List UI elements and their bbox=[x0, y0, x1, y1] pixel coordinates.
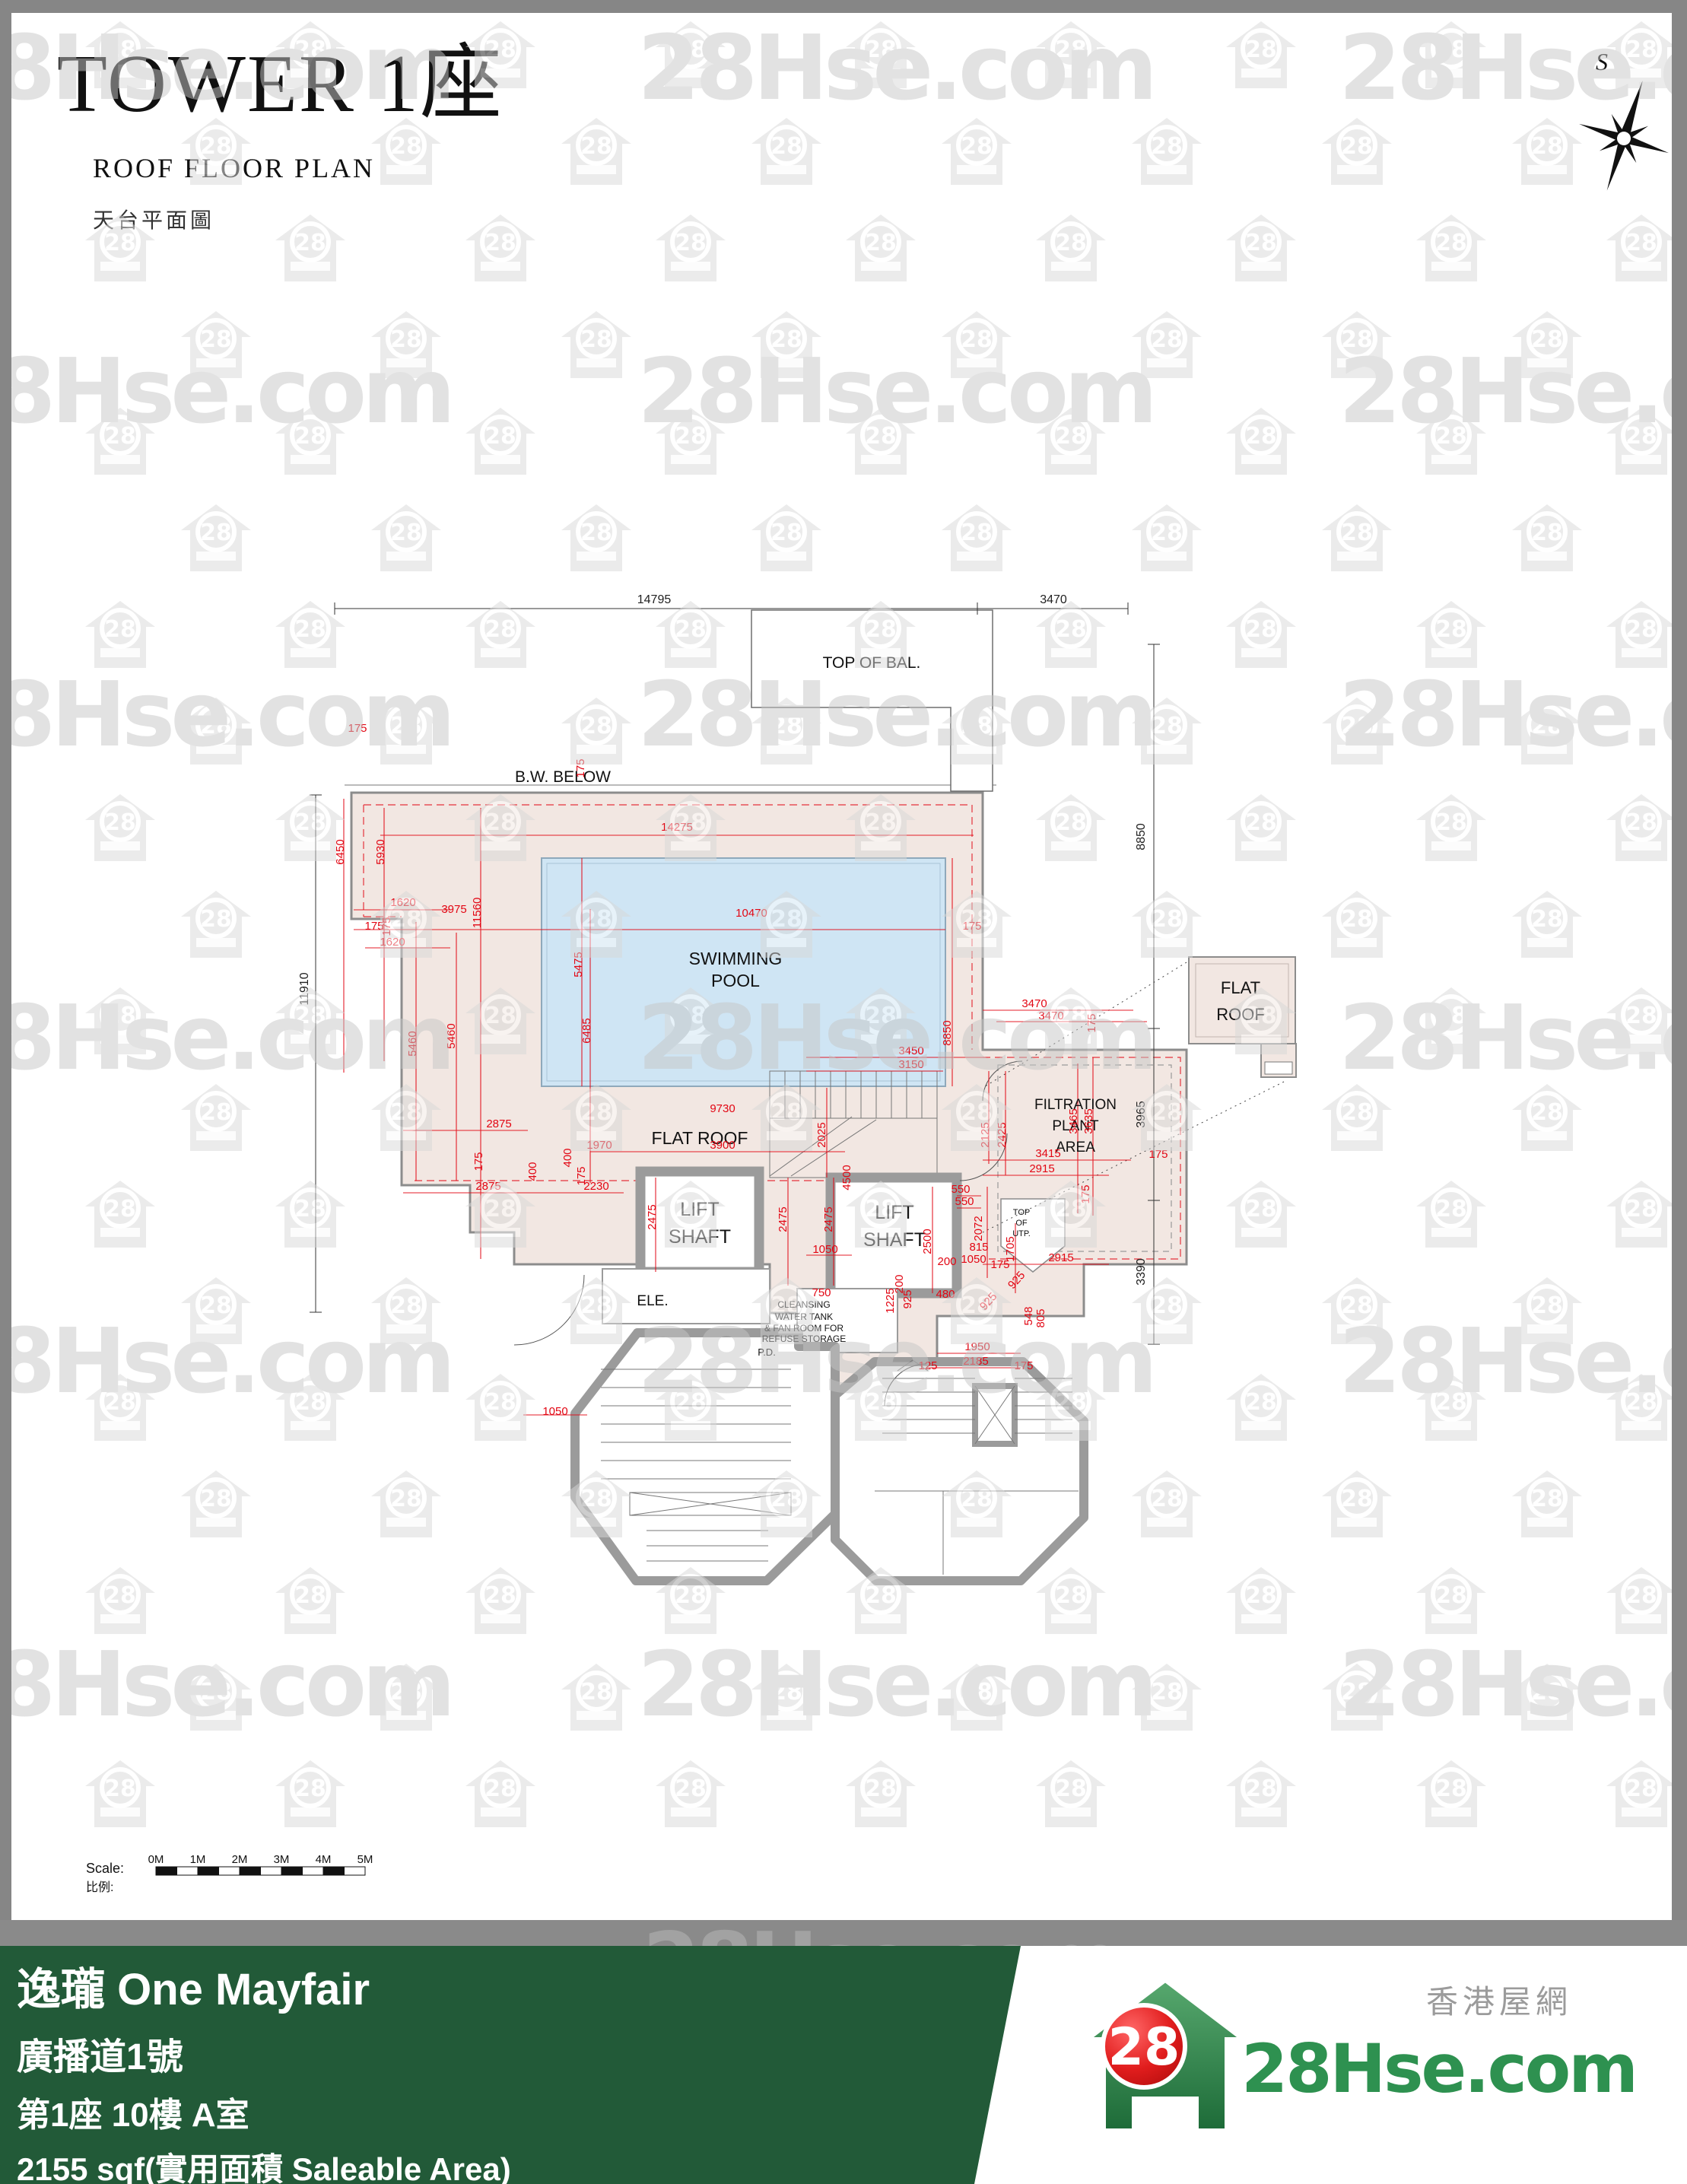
dimension-label: 11560 bbox=[471, 898, 484, 929]
dimension-label: 2072 bbox=[972, 1216, 985, 1241]
dimension-label: 14795 bbox=[637, 593, 672, 606]
dimension-label: 2230 bbox=[583, 1180, 608, 1193]
top-of-bal-box bbox=[751, 610, 993, 791]
room-label: AREA bbox=[1056, 1140, 1095, 1156]
dimension-label: 1620 bbox=[390, 896, 415, 909]
strip-watermark: 28Hse.com bbox=[643, 1920, 1118, 1946]
room-label: B.W. BELOW bbox=[515, 768, 611, 786]
dimension-label: 175 bbox=[1148, 1148, 1168, 1161]
dimension-label: 815 bbox=[969, 1241, 988, 1254]
dimension-label: 175 bbox=[380, 917, 393, 936]
room-label: LIFT bbox=[680, 1199, 719, 1220]
dimension-label: 2025 bbox=[815, 1122, 828, 1147]
dimension-label: 3390 bbox=[1135, 1258, 1148, 1286]
dimension-label: 2915 bbox=[1029, 1162, 1054, 1175]
dimension-label: 200 bbox=[937, 1255, 956, 1268]
dimension-label: 11910 bbox=[298, 972, 311, 1005]
logo-28hse[interactable]: 28 香港屋網 28Hse.com bbox=[1080, 1946, 1687, 2184]
room-label: OF bbox=[1015, 1219, 1028, 1228]
stair-tower-right bbox=[835, 1362, 1084, 1581]
dimension-label: 1620 bbox=[380, 936, 405, 949]
scale-tick: 5M bbox=[357, 1853, 373, 1866]
dimension-label: 3415 bbox=[1035, 1147, 1060, 1160]
dimension-label: 400 bbox=[561, 1148, 574, 1167]
room-label: REFUSE STORAGE bbox=[762, 1334, 846, 1344]
page-subtitle: ROOF FLOOR PLAN bbox=[93, 152, 701, 184]
dimension-label: 5460 bbox=[406, 1031, 419, 1056]
dimension-label: 1950 bbox=[964, 1340, 990, 1353]
dimension-label: 805 bbox=[1034, 1308, 1047, 1327]
dimension-label: 10470 bbox=[735, 907, 767, 920]
room-label: TOP bbox=[1013, 1208, 1030, 1217]
dimension-label: 6485 bbox=[580, 1018, 593, 1043]
compass: S bbox=[1562, 48, 1687, 205]
compass-s-label: S bbox=[1596, 48, 1608, 75]
dimension-label: 1970 bbox=[586, 1139, 612, 1152]
scale-segment bbox=[345, 1867, 366, 1875]
dimension-label: 125 bbox=[918, 1359, 937, 1372]
divider-strip: 28Hse.com bbox=[0, 1920, 1687, 1946]
dimension-label: 3470 bbox=[1038, 1009, 1063, 1022]
dimension-label: 2915 bbox=[1048, 1251, 1073, 1264]
dimension-label: 3470 bbox=[1040, 593, 1067, 606]
dimension-label: 2475 bbox=[822, 1206, 835, 1232]
dimension-label: 1050 bbox=[812, 1243, 837, 1256]
dimension-label: 2475 bbox=[777, 1206, 789, 1232]
dimension-label: 550 bbox=[955, 1195, 974, 1208]
scale-bar: Scale:比例:0M1M2M3M4M5M bbox=[86, 1853, 373, 1894]
dimension-label: 548 bbox=[1022, 1306, 1035, 1325]
dimension-label: 5930 bbox=[374, 839, 387, 864]
dimension-label: 9730 bbox=[710, 1102, 735, 1115]
property-banner: 逸瓏 One Mayfair 廣播道1號 第1座 10樓 A室 2155 sqf… bbox=[0, 1946, 1027, 2184]
dimension-label: 400 bbox=[526, 1162, 539, 1181]
scale-tick: 1M bbox=[190, 1853, 206, 1866]
room-label: SHAFT bbox=[669, 1226, 731, 1248]
room-label: SWIMMING bbox=[689, 949, 783, 968]
dimension-label: 8850 bbox=[941, 1020, 954, 1045]
dimension-label: 3900 bbox=[710, 1139, 735, 1152]
scale-tick: 2M bbox=[232, 1853, 248, 1866]
room-label: ROOF bbox=[1216, 1005, 1265, 1024]
dimension-label: 2475 bbox=[646, 1204, 659, 1229]
dimension-label: 1050 bbox=[961, 1253, 986, 1266]
dimension-label: 5460 bbox=[445, 1023, 458, 1048]
logo-badge: 28 bbox=[1108, 2017, 1180, 2078]
unit-info: 第1座 10樓 A室 bbox=[17, 2087, 1027, 2136]
dimension-label: 3150 bbox=[898, 1058, 923, 1071]
scale-segment bbox=[281, 1867, 303, 1875]
scale-label-cn: 比例: bbox=[86, 1880, 113, 1894]
ele-room bbox=[602, 1269, 770, 1324]
dimension-label: 2875 bbox=[475, 1180, 500, 1193]
logo-house-icon: 28 bbox=[1086, 1978, 1246, 2138]
room-label: ELE. bbox=[637, 1293, 668, 1309]
scale-segment bbox=[240, 1867, 261, 1875]
room-label: & FAN ROOM FOR bbox=[764, 1323, 843, 1334]
frame-right bbox=[1672, 13, 1687, 1946]
page: B.W. BELOWTOP OF BAL.SWIMMINGPOOLFLAT RO… bbox=[0, 0, 1687, 2184]
estate-address: 廣播道1號 bbox=[17, 2027, 1027, 2080]
room-label: POOL bbox=[711, 971, 760, 990]
frame-top bbox=[0, 0, 1687, 13]
room-label: CLEANSING bbox=[777, 1299, 830, 1310]
dimension-label: 3975 bbox=[441, 903, 466, 916]
dimension-label: 3470 bbox=[1021, 997, 1047, 1010]
scale-segment bbox=[156, 1867, 177, 1875]
dimension-label: 175 bbox=[472, 1152, 485, 1171]
scale-segment bbox=[261, 1867, 282, 1875]
room-label: SHAFT bbox=[863, 1229, 926, 1251]
site-name: 28Hse.com bbox=[1241, 2030, 1636, 2108]
dimension-label: 14275 bbox=[661, 821, 693, 834]
scale-segment bbox=[323, 1867, 345, 1875]
stair-tower-left bbox=[575, 1333, 835, 1581]
room-label: FLAT bbox=[1221, 978, 1260, 997]
dimension-label: 5475 bbox=[572, 952, 585, 977]
floor-plan: B.W. BELOWTOP OF BAL.SWIMMINGPOOLFLAT RO… bbox=[0, 0, 1687, 2184]
frame-left bbox=[0, 13, 11, 1920]
dimension-label: 550 bbox=[951, 1183, 970, 1196]
dimension-label: 3965 bbox=[1135, 1101, 1148, 1128]
room-label: LIFT bbox=[875, 1202, 913, 1223]
dimension-label: 3635 bbox=[1082, 1108, 1095, 1133]
scale-segment bbox=[198, 1867, 219, 1875]
estate-name: 逸瓏 One Mayfair bbox=[17, 1954, 1027, 2017]
scale-segment bbox=[303, 1867, 324, 1875]
dimension-label: 480 bbox=[936, 1288, 955, 1301]
dimension-label: 175 bbox=[962, 920, 981, 933]
dimension-label: 2125 bbox=[979, 1122, 992, 1147]
area-info: 2155 sqf(實用面積 Saleable Area) bbox=[17, 2144, 1027, 2184]
dimension-label: 3450 bbox=[898, 1044, 923, 1057]
dimension-label: 175 bbox=[1079, 1184, 1092, 1203]
dimension-label: 175 bbox=[574, 758, 587, 777]
dimension-label: 1705 bbox=[1004, 1236, 1017, 1261]
dimension-label: 925 bbox=[901, 1289, 914, 1308]
dimension-label: 2875 bbox=[486, 1117, 511, 1130]
room-label: TOP OF BAL. bbox=[823, 654, 921, 672]
dimension-label: 1225 bbox=[884, 1288, 897, 1313]
dimension-label: 175 bbox=[1085, 1013, 1098, 1032]
dimension-label: 6450 bbox=[334, 839, 347, 864]
scale-segment bbox=[177, 1867, 199, 1875]
page-title: TOWER 1座 bbox=[57, 17, 970, 135]
dimension-label: 2425 bbox=[996, 1122, 1009, 1147]
scale-label: Scale: bbox=[86, 1861, 124, 1876]
dimension-label: 750 bbox=[812, 1286, 831, 1299]
scale-tick: 3M bbox=[274, 1853, 290, 1866]
dimension-label: 175 bbox=[348, 722, 367, 735]
dimension-label: 2500 bbox=[921, 1229, 934, 1254]
scale-segment bbox=[219, 1867, 240, 1875]
dimension-label: 3465 bbox=[1067, 1108, 1080, 1133]
page-subtitle-cn: 天台平面圖 bbox=[93, 204, 549, 234]
dimension-label: 2185 bbox=[963, 1355, 988, 1368]
scale-tick: 4M bbox=[316, 1853, 332, 1866]
scale-tick: 0M bbox=[148, 1853, 164, 1866]
dimension-label: 175 bbox=[1014, 1359, 1033, 1372]
room-label: P.D. bbox=[758, 1346, 776, 1358]
footer: 逸瓏 One Mayfair 廣播道1號 第1座 10樓 A室 2155 sqf… bbox=[0, 1946, 1687, 2184]
room-label: WATER TANK bbox=[775, 1311, 833, 1322]
dimension-label: 8850 bbox=[1135, 823, 1148, 850]
dimension-label: 1050 bbox=[542, 1405, 567, 1418]
site-name-cn: 香港屋網 bbox=[1426, 1976, 1572, 2023]
dimension-label: 4500 bbox=[840, 1165, 853, 1190]
